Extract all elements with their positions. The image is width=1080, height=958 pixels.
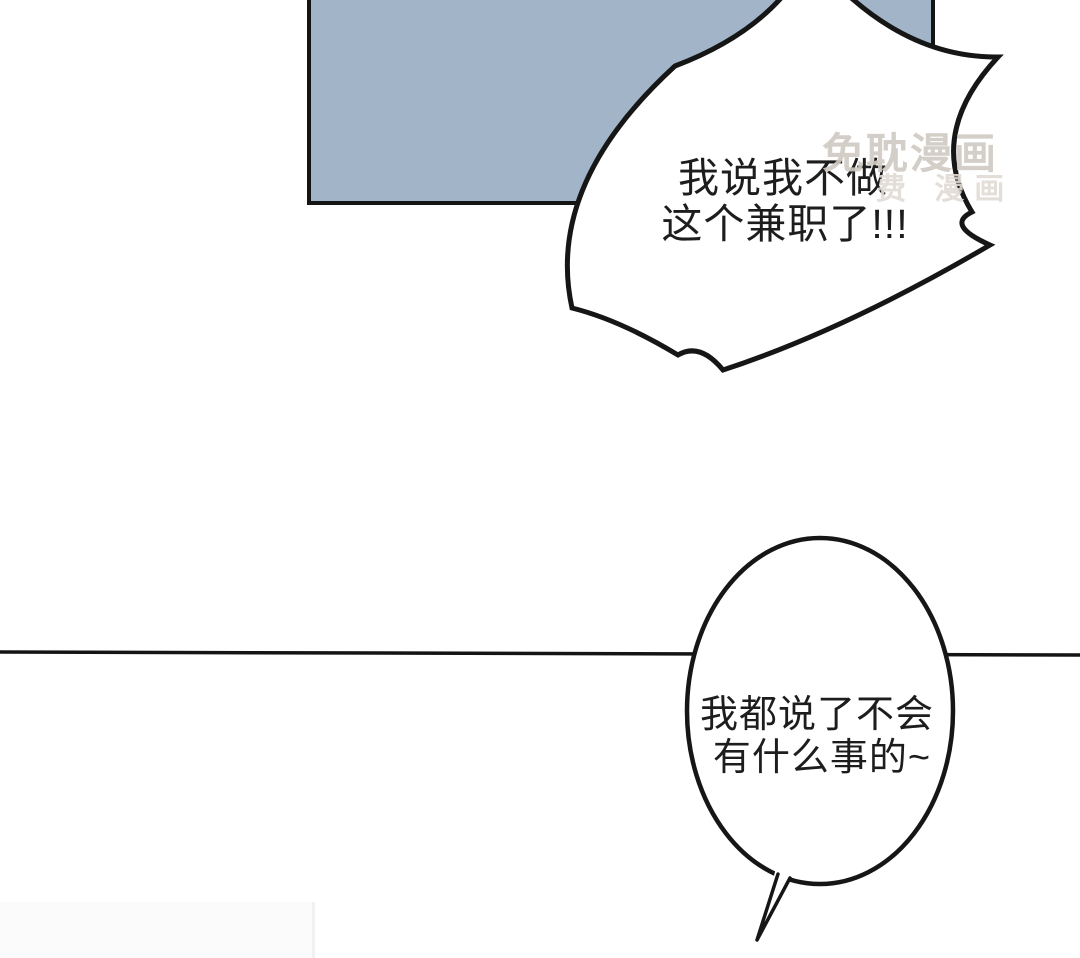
- next-panel-ghost-edge: [0, 902, 315, 958]
- speech-bubble-text-line1: 我都说了不会: [700, 694, 934, 736]
- shout-bubble-text-line2: 这个兼职了!!!: [661, 201, 908, 247]
- comic-page: 我说我不做 这个兼职了!!! 我都说了不会 有什么事的~ 免耽漫画 费 漫画: [0, 0, 1080, 958]
- shout-bubble-text-line1: 我说我不做: [678, 155, 888, 201]
- comic-artwork: 我说我不做 这个兼职了!!! 我都说了不会 有什么事的~: [0, 0, 1080, 958]
- speech-bubble-tail-outline: [757, 874, 790, 940]
- speech-bubble-text-line2: 有什么事的~: [713, 737, 931, 779]
